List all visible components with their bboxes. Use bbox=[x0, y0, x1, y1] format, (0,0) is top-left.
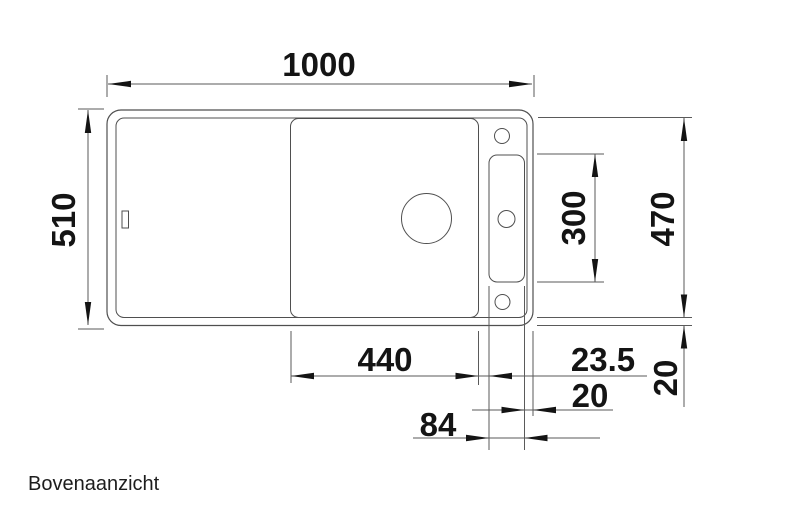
drain-hole bbox=[402, 194, 452, 244]
dim-label-20-right: 20 bbox=[647, 360, 684, 397]
accessory-hole-bottom bbox=[495, 295, 510, 310]
dim-label-84: 84 bbox=[420, 406, 457, 443]
dim-label-20-bottom: 20 bbox=[572, 377, 609, 414]
dim-label-510: 510 bbox=[45, 192, 82, 247]
dim-label-23.5: 23.5 bbox=[571, 341, 635, 378]
arrow-84-left bbox=[466, 435, 489, 441]
tap-panel bbox=[489, 155, 525, 282]
arrow-300-bottom bbox=[592, 259, 598, 282]
arrow-510-bottom bbox=[85, 302, 91, 325]
sink-top-view-drawing: 1000 510 470 300 20 440 23.5 20 84 Boven… bbox=[0, 0, 800, 518]
dim-label-440: 440 bbox=[357, 341, 412, 378]
dim-label-1000: 1000 bbox=[282, 46, 355, 83]
arrow-84-right bbox=[525, 435, 548, 441]
arrow-20-bottom-left bbox=[502, 407, 525, 413]
arrow-300-top bbox=[592, 154, 598, 177]
tap-hole bbox=[498, 211, 515, 228]
drawing-caption: Bovenaanzicht bbox=[28, 473, 160, 495]
sink-inner-rim bbox=[116, 118, 527, 318]
dim-label-470: 470 bbox=[644, 191, 681, 246]
technical-drawing-svg: 1000 510 470 300 20 440 23.5 20 84 Boven… bbox=[0, 0, 800, 518]
sink-outline-group bbox=[107, 110, 533, 326]
dim-label-300: 300 bbox=[555, 190, 592, 245]
arrow-470-bottom bbox=[681, 295, 687, 318]
arrow-1000-right bbox=[509, 81, 532, 87]
overflow-slot bbox=[122, 211, 129, 228]
dimension-labels: 1000 510 470 300 20 440 23.5 20 84 bbox=[45, 46, 684, 443]
accessory-hole-top bbox=[495, 129, 510, 144]
arrow-440-right bbox=[456, 373, 479, 379]
sink-outer-outline bbox=[107, 110, 533, 326]
arrow-1000-left bbox=[108, 81, 131, 87]
arrow-20-right-up bbox=[681, 326, 687, 349]
arrow-20-bottom-right bbox=[533, 407, 556, 413]
main-bowl-section bbox=[291, 119, 479, 318]
arrow-23.5-left bbox=[489, 373, 512, 379]
arrow-510-top bbox=[85, 110, 91, 133]
arrow-440-left bbox=[291, 373, 314, 379]
arrow-470-top bbox=[681, 118, 687, 141]
